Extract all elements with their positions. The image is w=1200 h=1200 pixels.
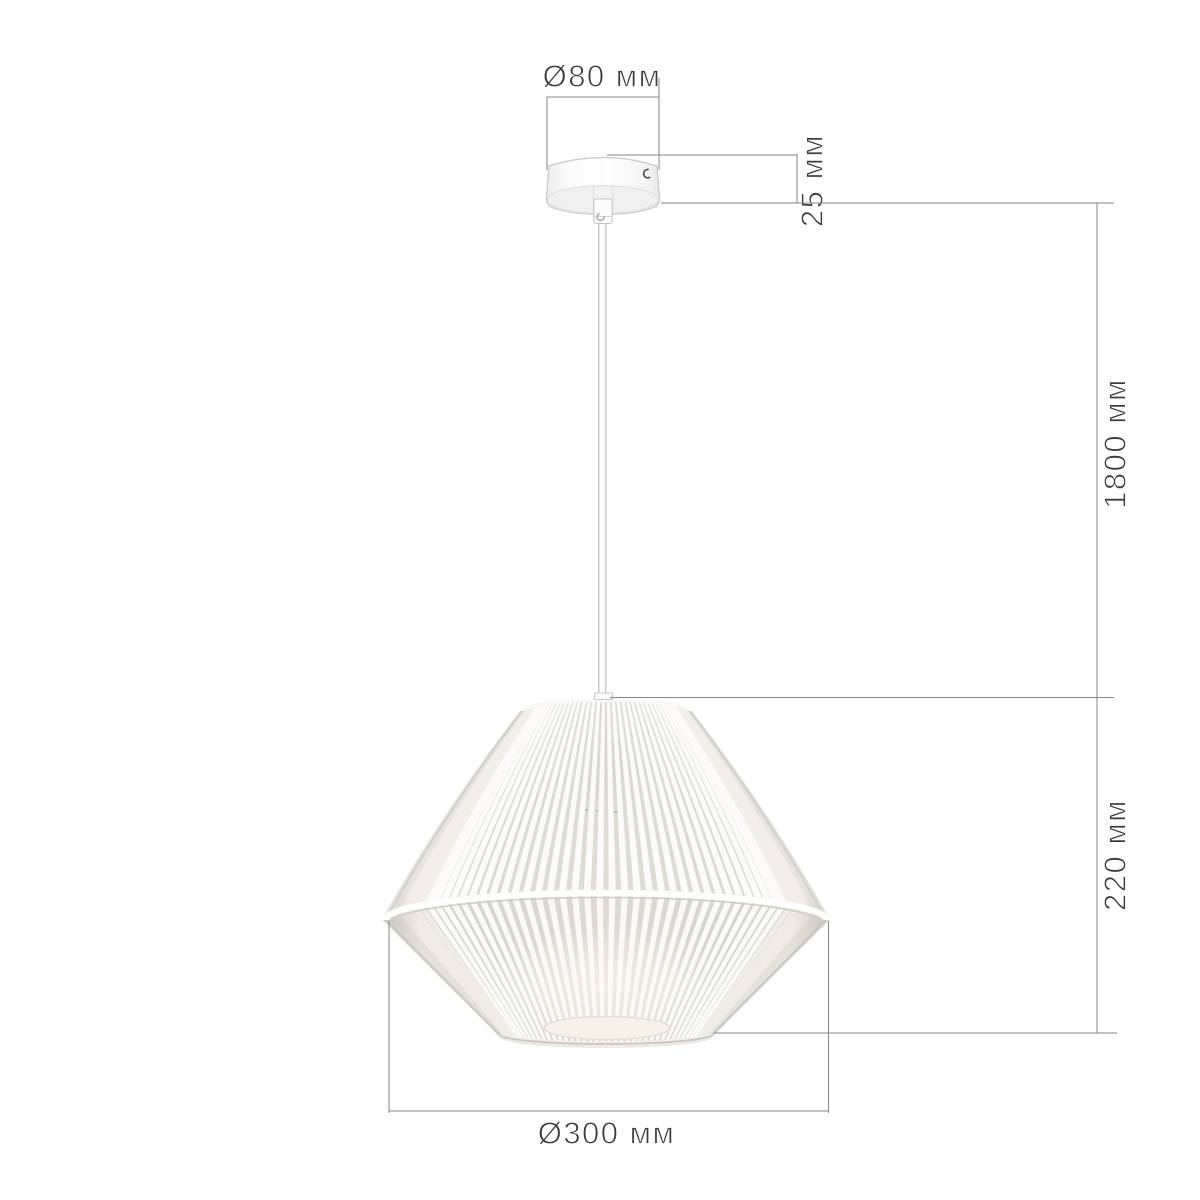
svg-text:25 мм: 25 мм [795, 134, 830, 227]
svg-text:Ø300 мм: Ø300 мм [538, 1116, 676, 1151]
svg-text:1800 мм: 1800 мм [1098, 378, 1133, 509]
svg-text:Ø80 мм: Ø80 мм [543, 59, 662, 94]
svg-text:220 мм: 220 мм [1098, 799, 1133, 911]
